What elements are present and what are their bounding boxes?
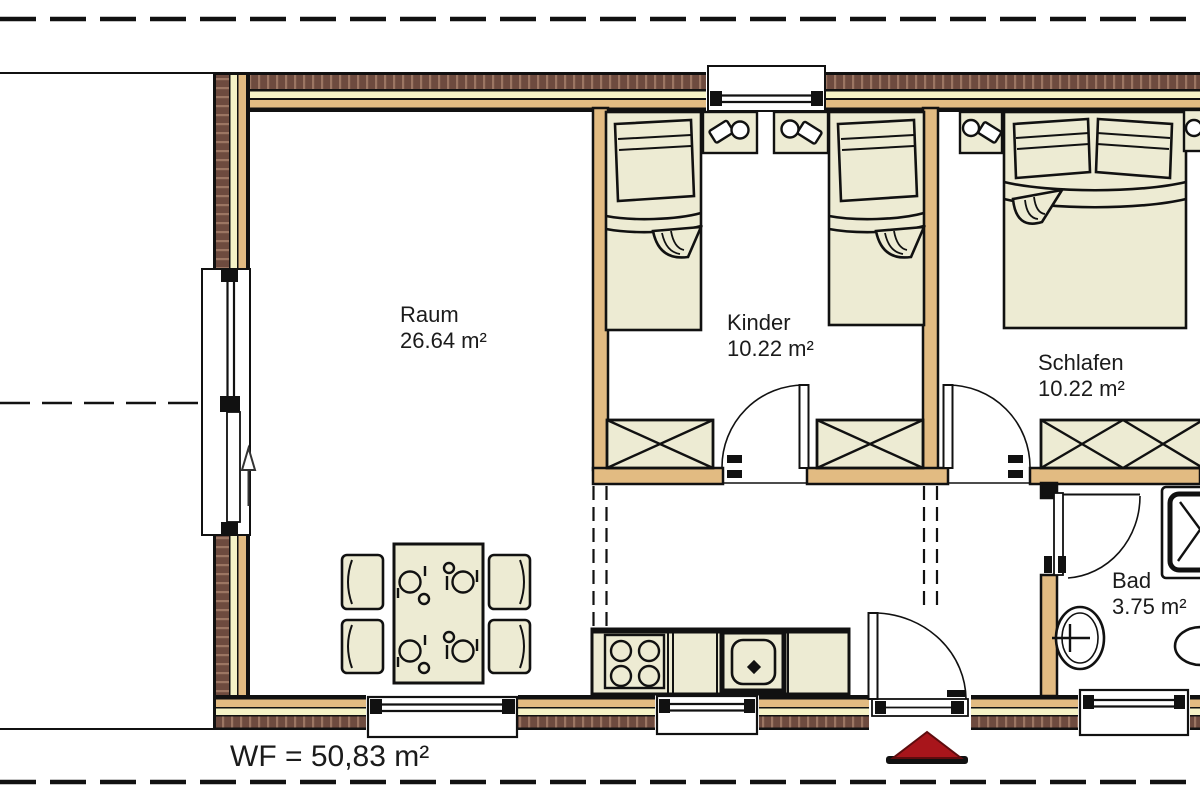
window-top-kinder	[706, 64, 826, 112]
entrance-marker-icon	[886, 732, 968, 764]
room-label-kinder: Kinder10.22 m²	[727, 310, 814, 361]
room-area: 3.75 m²	[1112, 594, 1187, 620]
room-name: Kinder	[727, 310, 791, 335]
window-bottom-bad	[1078, 687, 1190, 736]
floorplan-drawing	[0, 0, 1200, 800]
living-area-label: WF = 50,83 m²	[230, 740, 429, 774]
room-label-schlafen: Schlafen10.22 m²	[1038, 350, 1125, 401]
room-area: 10.22 m²	[727, 336, 814, 362]
bed-double-schlafen	[1004, 112, 1186, 328]
room-area: 26.64 m²	[400, 328, 487, 354]
room-area: 10.22 m²	[1038, 376, 1125, 402]
room-name: Raum	[400, 302, 459, 327]
floorplan-page: Raum26.64 m² Kinder10.22 m² Schlafen10.2…	[0, 0, 1200, 800]
room-name: Bad	[1112, 568, 1151, 593]
bed-kinder-2	[829, 112, 924, 325]
window-bottom-kitchen	[655, 692, 759, 736]
bed-kinder-1	[606, 112, 701, 330]
window-left	[200, 268, 255, 536]
window-bottom-raum	[366, 692, 518, 738]
wardrobes	[607, 420, 1200, 468]
room-name: Schlafen	[1038, 350, 1124, 375]
kitchen-counter	[592, 629, 849, 694]
room-label-bad: Bad3.75 m²	[1112, 568, 1187, 619]
room-label-raum: Raum26.64 m²	[400, 302, 487, 353]
